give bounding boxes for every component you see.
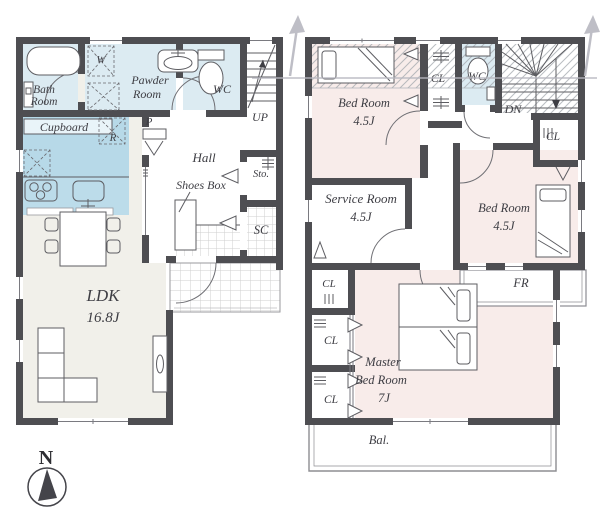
label-wc-2f: WC: [468, 71, 486, 83]
compass: N: [28, 447, 66, 506]
label-bedroom2-size: 4.5J: [493, 219, 516, 233]
label-ldk-size: 16.8J: [87, 310, 121, 326]
label-bath-room-1: Bath: [33, 84, 55, 96]
label-closet-a: CL: [322, 278, 335, 290]
label-powder-room-1: Pawder: [130, 73, 169, 87]
label-bedroom2: Bed Room: [478, 201, 530, 215]
label-cupboard: Cupboard: [40, 120, 89, 134]
label-shoes-box: Shoes Box: [176, 178, 226, 192]
label-closet-right: CL: [546, 131, 560, 143]
label-closet-b: CL: [324, 335, 338, 347]
label-storage: Sto.: [253, 169, 269, 180]
label-balcony: Bal.: [369, 433, 389, 447]
label-stairs-down: DN: [504, 102, 523, 116]
label-master-1: Master: [364, 355, 401, 369]
bathtub: [27, 47, 80, 75]
floor2-plan: Bed Room 4.5J CL WC DN CL Service Room 4…: [305, 37, 586, 471]
label-north: N: [39, 447, 54, 469]
label-ldk: LDK: [85, 286, 121, 305]
floor1-plan: Bath Room W Pawder Room WC UP Cupboard R…: [16, 37, 283, 425]
bed-bedroom2: [536, 185, 570, 257]
compass-needle: [38, 469, 57, 501]
vanity-sink: [158, 49, 198, 72]
label-hall: Hall: [191, 150, 216, 165]
label-washer: W: [96, 54, 106, 66]
label-closet-c: CL: [324, 394, 338, 406]
label-bedroom1-size: 4.5J: [353, 114, 376, 128]
label-closet-top: CL: [431, 73, 445, 85]
pantry-shelf: [143, 129, 166, 139]
label-pantry: P: [145, 116, 153, 128]
beds-master: [399, 284, 477, 370]
label-bedroom1: Bed Room: [338, 96, 390, 110]
label-service-room: Service Room: [325, 191, 397, 206]
floor-plan-svg: Bath Room W Pawder Room WC UP Cupboard R…: [0, 0, 600, 528]
floor-plan-canvas: Bath Room W Pawder Room WC UP Cupboard R…: [0, 0, 600, 528]
label-refrigerator: R: [109, 132, 117, 144]
label-free-room: FR: [512, 276, 529, 290]
label-stairs-up: UP: [252, 110, 269, 124]
band-arrow-left: [289, 15, 305, 34]
label-master-2: Bed Room: [355, 373, 407, 387]
label-wc-1f: WC: [213, 82, 232, 96]
label-shoes-closet: SC: [254, 223, 269, 237]
label-powder-room-2: Room: [132, 87, 161, 101]
shoes-box-cabinet: [175, 200, 196, 250]
label-master-3: 7J: [378, 391, 391, 405]
tv-board: [153, 336, 167, 392]
label-service-room-size: 4.5J: [350, 210, 373, 224]
balcony: [309, 425, 556, 471]
label-bath-room-2: Room: [30, 96, 58, 108]
band-arrow-right: [584, 15, 600, 34]
entrance-porch: [170, 263, 280, 312]
